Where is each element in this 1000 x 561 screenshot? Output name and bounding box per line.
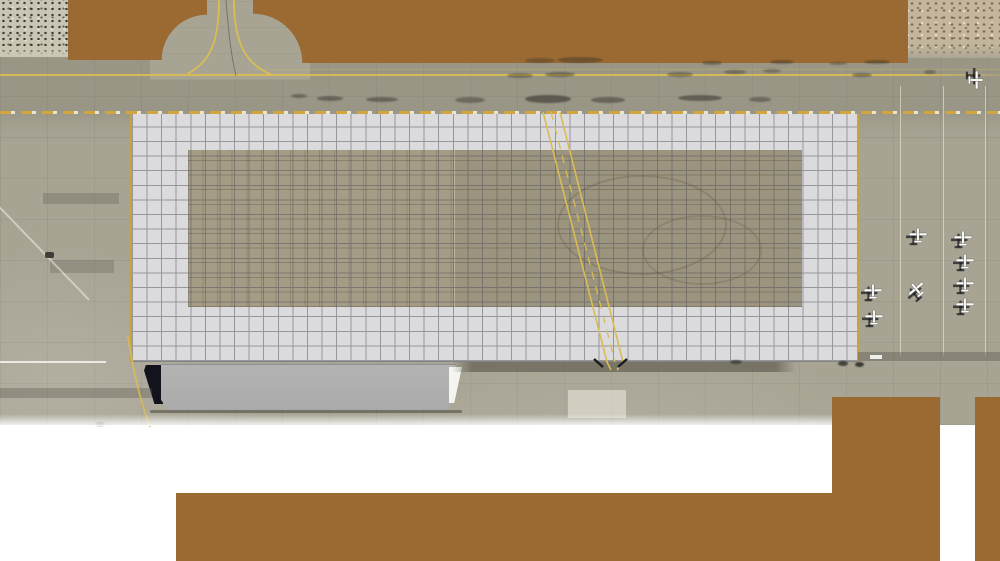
mesh-grid-overlay[interactable] <box>130 114 859 362</box>
tire-mark <box>855 362 864 367</box>
tire-mark <box>702 61 722 65</box>
pavement-patch <box>43 193 119 204</box>
tire-mark <box>366 97 398 102</box>
airplane-icon[interactable] <box>963 68 987 92</box>
tie-down-line <box>900 86 901 356</box>
airplane-icon[interactable] <box>861 280 885 304</box>
brown-polygon-top-right[interactable] <box>253 0 908 63</box>
airplane-icon[interactable] <box>953 294 977 318</box>
brown-polygon-right-column[interactable] <box>832 397 940 561</box>
tire-mark <box>667 72 693 77</box>
tire-mark <box>678 95 722 101</box>
airplane-icon[interactable] <box>906 224 930 248</box>
tire-mark <box>770 60 794 64</box>
tire-mark <box>591 97 625 103</box>
airplane-icon[interactable] <box>951 227 975 251</box>
hangar-building[interactable] <box>161 364 456 410</box>
airplane-icon-glyph <box>953 294 977 318</box>
tire-mark <box>730 360 742 364</box>
tire-mark <box>455 97 485 103</box>
airplane-icon[interactable] <box>862 306 886 330</box>
aerial-airport-map-canvas[interactable] <box>0 0 1000 561</box>
service-road-strip <box>452 362 796 372</box>
tie-down-line <box>985 86 986 356</box>
airplane-icon-glyph <box>951 227 975 251</box>
airplane-icon-glyph <box>861 280 885 304</box>
tire-mark <box>507 73 533 78</box>
tire-mark <box>924 70 936 74</box>
hangar-base-shadow-line <box>150 410 462 413</box>
tire-mark <box>864 60 890 64</box>
tire-mark <box>557 57 603 63</box>
taxiway-edge-line-faint <box>255 69 1000 70</box>
photo-bottom-fade <box>0 414 836 426</box>
brown-polygon-bottom[interactable] <box>176 493 940 561</box>
tire-mark <box>749 97 771 102</box>
tire-mark <box>525 95 571 103</box>
white-edge-line <box>0 361 106 363</box>
airplane-icon-glyph <box>906 224 930 248</box>
tire-loop-mark <box>642 215 762 285</box>
tire-mark <box>724 70 746 74</box>
airplane-icon-glyph <box>963 68 987 92</box>
parked-vehicle <box>45 252 54 258</box>
white-vehicle <box>869 354 883 360</box>
airplane-icon-glyph <box>862 306 886 330</box>
airplane-icon[interactable] <box>953 250 977 274</box>
dashed-hold-line <box>0 111 1000 114</box>
dark-road-band <box>0 388 152 398</box>
tire-mark <box>852 73 872 77</box>
tire-mark <box>525 58 555 63</box>
tire-mark <box>763 69 781 73</box>
tire-mark <box>838 361 848 366</box>
texture-seam <box>454 150 455 307</box>
tire-mark <box>829 62 847 65</box>
brown-polygon-top-left[interactable] <box>68 0 207 60</box>
desert-scrub-top-left <box>0 0 68 57</box>
desert-scrub-top-right <box>908 0 1000 58</box>
tan-compacted-area <box>188 150 802 307</box>
tire-mark <box>545 72 575 77</box>
brown-polygon-far-right-column[interactable] <box>975 397 1000 561</box>
airplane-icon-glyph <box>953 250 977 274</box>
tie-down-line <box>943 86 944 356</box>
tire-mark <box>317 96 343 101</box>
taxiway-edge-line <box>0 74 1000 76</box>
tire-mark <box>291 94 307 98</box>
